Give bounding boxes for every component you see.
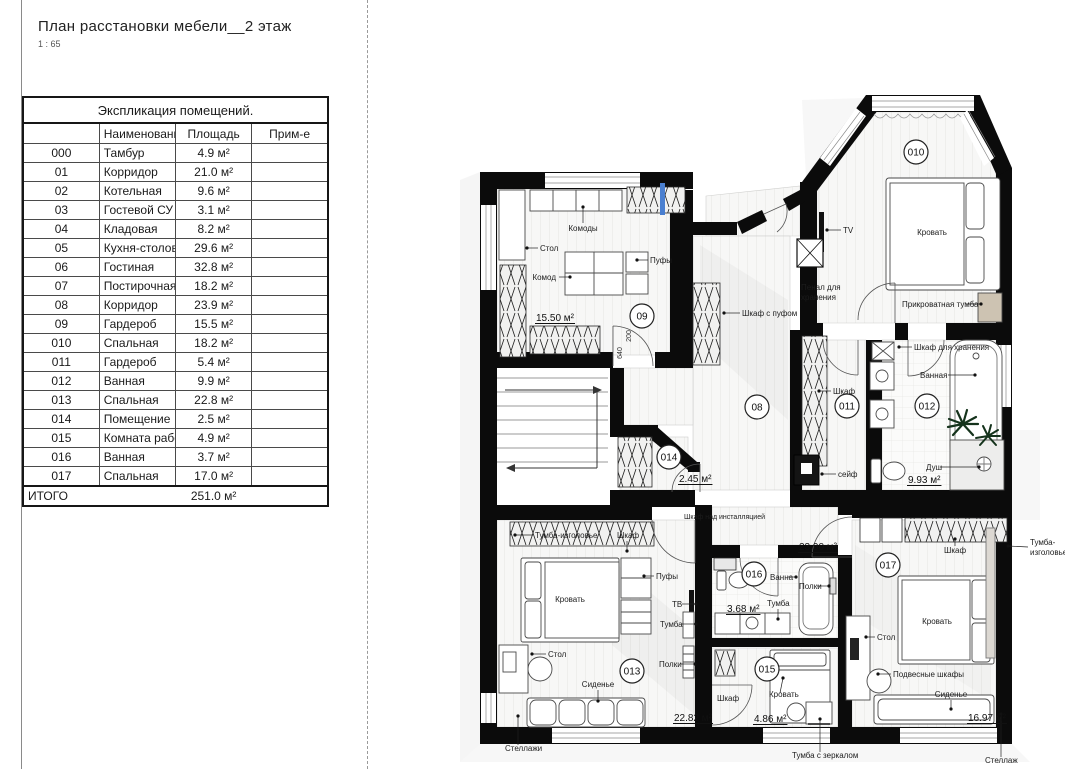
headboard-band-017 (986, 528, 995, 658)
stairs (497, 378, 608, 472)
room-number: 09 (636, 312, 648, 323)
leader-dot (722, 311, 725, 314)
shelves-016 (830, 578, 836, 594)
leader-dot (625, 549, 628, 552)
leader-dot (864, 635, 867, 638)
plan-label: Тумба (767, 599, 790, 608)
plan-label: Сиденье (582, 680, 615, 689)
leader-dot (949, 707, 952, 710)
leader-dot (1006, 544, 1009, 547)
plan-label: Шкаф для хранения (914, 343, 989, 352)
leader-dot (516, 714, 519, 717)
plan-label: Пуфы (650, 256, 672, 265)
cubby-017 (882, 518, 902, 542)
plan-label: Стеллаж (985, 756, 1018, 765)
plan-label: Тумба- (1030, 538, 1056, 547)
leader-dot (953, 537, 956, 540)
floor-landing (613, 368, 693, 425)
room-number: 017 (880, 561, 897, 572)
safe-011 (794, 455, 819, 485)
plan-label: Ванна (770, 573, 794, 582)
plan-label: Полки (659, 660, 682, 669)
room-number: 015 (759, 665, 776, 676)
pouf (626, 252, 648, 272)
sink-012 (870, 400, 894, 428)
room-number: 011 (839, 402, 855, 413)
area-label: 23.90 м² (799, 542, 838, 553)
area-label: 2.45 м² (679, 474, 712, 485)
desk-09 (499, 190, 525, 260)
leader-dot (781, 676, 784, 679)
leader-dot (817, 389, 820, 392)
leader-dot (820, 472, 823, 475)
closet-09-bottom (530, 326, 600, 354)
closet-09-left (500, 265, 526, 357)
floor-hall (712, 507, 838, 545)
area-label: 15.50 м² (536, 313, 575, 324)
pillow (774, 653, 826, 666)
window (552, 728, 640, 743)
leader-dot (794, 575, 797, 578)
storage-cabinet-012 (872, 342, 894, 360)
room-number: 012 (919, 402, 936, 413)
dresser-row-09 (530, 190, 622, 211)
room-number: 013 (624, 667, 641, 678)
closet-015 (715, 650, 735, 676)
closet-corridor (693, 283, 720, 365)
leader-dot (513, 533, 516, 536)
leader-dot (568, 275, 571, 278)
window-seat-013 (527, 698, 645, 727)
leader-dot (973, 373, 976, 376)
plan-label: изголовье (1030, 548, 1065, 557)
pillow (525, 601, 541, 638)
leader-dot (827, 584, 830, 587)
plan-label: Стол (540, 244, 559, 253)
plan-label: Пенал для (801, 283, 841, 292)
tv-stand-013 (683, 612, 694, 638)
plan-label: Сиденье (935, 690, 968, 699)
plan-label: Комоды (568, 224, 598, 233)
plan-label: Шкаф (717, 694, 739, 703)
leader-dot (897, 345, 900, 348)
floor-plan: КомодыСтолКомодПуфыTVКроватьПенал дляхра… (0, 0, 1065, 769)
drawing-sheet: План расстановки мебели__2 этаж 1 : 65 Э… (0, 0, 1065, 769)
plan-label: Пуфы (656, 572, 678, 581)
plan-label: Кровать (917, 228, 947, 237)
chair-017 (867, 669, 891, 693)
leader-dot (818, 717, 821, 720)
leader-dot (876, 672, 879, 675)
plan-label: Стеллажи (505, 744, 542, 753)
plan-label: Стол (877, 633, 896, 642)
leader-dot (642, 574, 645, 577)
mirror-table-015 (787, 702, 832, 724)
plan-label: Подвесные шкафы (893, 670, 964, 679)
leader-dot (530, 652, 533, 655)
closet-011 (802, 336, 827, 466)
cubby-017 (860, 518, 880, 542)
tub-016 (799, 563, 833, 635)
room-number: 014 (661, 453, 678, 464)
plan-label: Тумба (660, 620, 683, 629)
shelves-013 (683, 646, 694, 678)
plan-label: Комод (532, 273, 556, 282)
poufs-013 (621, 558, 651, 634)
blue-marker (660, 183, 665, 215)
pillow (966, 183, 984, 229)
plan-label: ТВ (672, 600, 682, 609)
window (481, 205, 496, 290)
area-label: 9.93 м² (908, 475, 941, 486)
leader-dot (776, 617, 779, 620)
leader-dot (596, 699, 599, 702)
plan-label: TV (843, 226, 854, 235)
sink-012 (870, 362, 894, 390)
vanity-016 (715, 613, 790, 634)
closet-014 (618, 437, 652, 487)
plan-label: Прикроватная тумба (902, 300, 979, 309)
area-label: 16.97 м² (968, 713, 1007, 724)
plan-label: Тумба с зеркалом (792, 751, 858, 760)
chair-013 (528, 657, 552, 681)
leader-dot (979, 302, 982, 305)
leader-dot (635, 258, 638, 261)
plan-label: Стол (548, 650, 567, 659)
leader-dot (977, 465, 980, 468)
plan-label: Шкаф (617, 531, 639, 540)
plan-label: сейф (838, 470, 858, 479)
room-number: 010 (908, 148, 925, 159)
plan-label: Кровать (922, 617, 952, 626)
plan-label: Душ (926, 463, 942, 472)
plan-label: Шкаф с пуфом (742, 309, 797, 318)
plan-label: Кровать (555, 595, 585, 604)
leader-dot (581, 205, 584, 208)
nightstand-010 (978, 293, 1002, 322)
monitor-017 (850, 638, 859, 660)
pillow (525, 562, 541, 599)
plan-label: Ванная (920, 371, 947, 380)
leader-dot (825, 228, 828, 231)
shower-012 (950, 440, 1004, 490)
window (481, 693, 496, 723)
leader-dot (525, 246, 528, 249)
plan-label: Полки (799, 582, 822, 591)
area-label: 4.86 м² (754, 714, 787, 725)
area-label: 22.82 м² (674, 713, 713, 724)
plan-label: хранения (801, 293, 836, 302)
window (900, 728, 997, 743)
room-number: 08 (751, 403, 763, 414)
pouf (626, 274, 648, 294)
plan-label: Кровать (769, 690, 799, 699)
cistern-shelf-016 (714, 558, 736, 570)
window (545, 173, 640, 188)
closet-09-top (627, 187, 685, 213)
leader-dot (694, 622, 697, 625)
plan-label: Шкаф над инсталляцией (684, 513, 765, 521)
stairs-arrow-down (506, 464, 515, 472)
leader-dot (694, 602, 697, 605)
dimension-text: 640 (617, 347, 624, 359)
dimension-text: 200 (626, 330, 633, 342)
plan-label: Тумба-изголовье (535, 531, 598, 540)
plan-label: Шкаф (944, 546, 966, 555)
room-number: 016 (746, 570, 763, 581)
leader-dot (693, 662, 696, 665)
area-label: 3.68 м² (727, 604, 760, 615)
pillow (966, 237, 984, 283)
storage-cabinet-010 (797, 239, 823, 267)
